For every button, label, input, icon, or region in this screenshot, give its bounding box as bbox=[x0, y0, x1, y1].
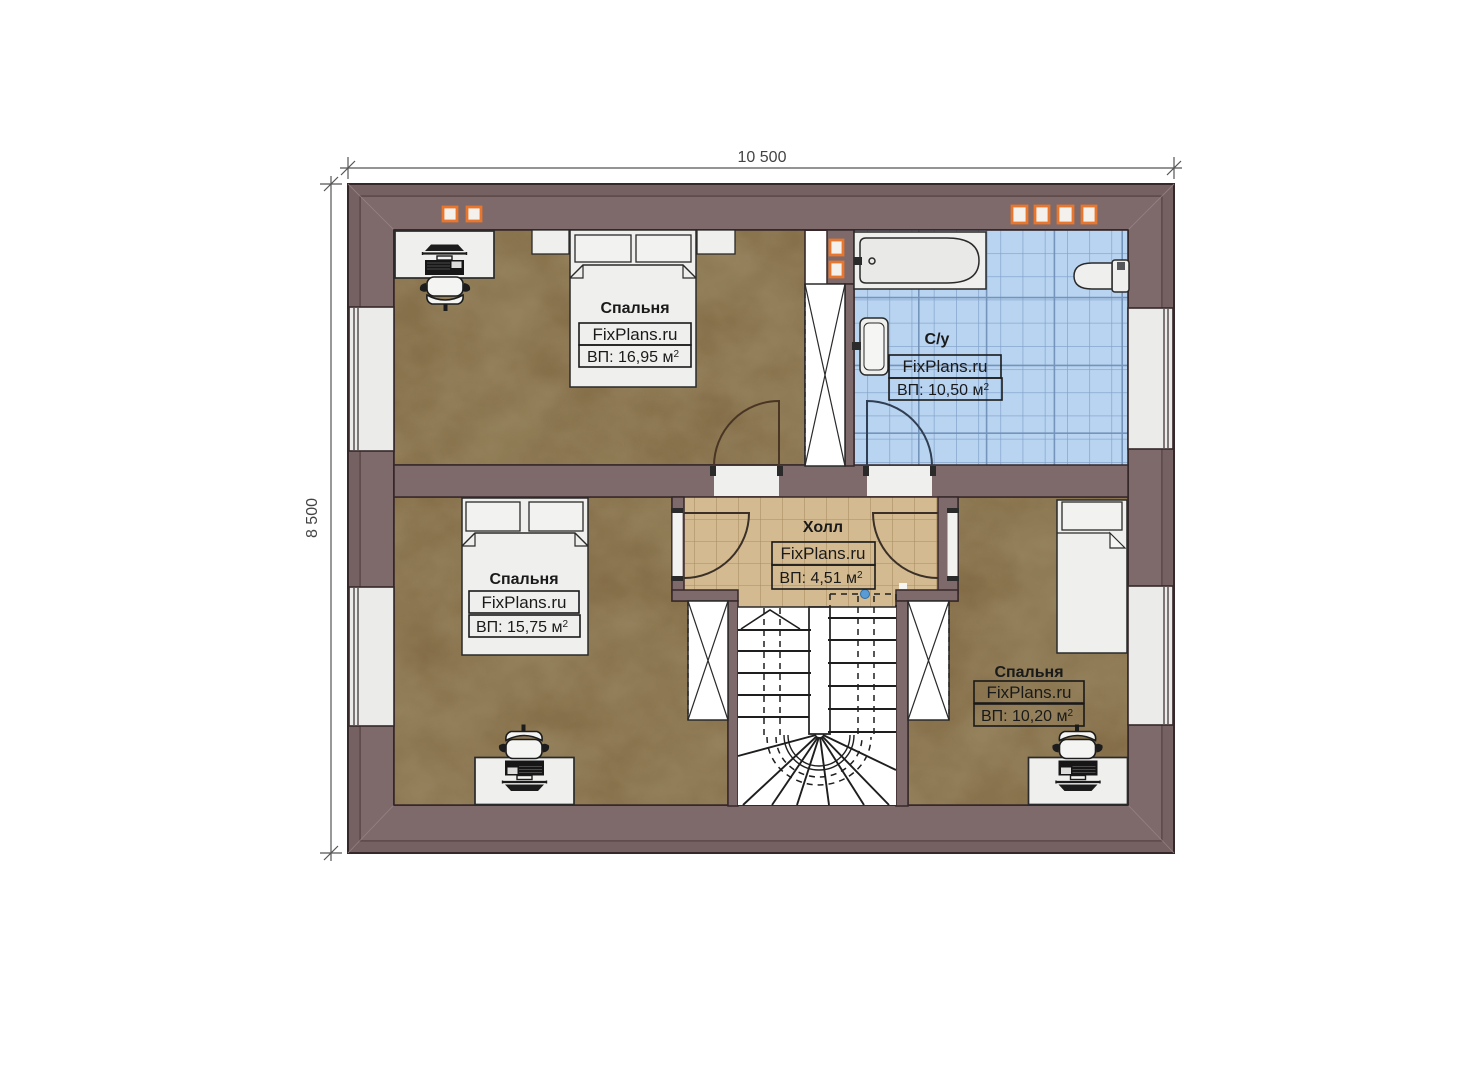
svg-text:FixPlans.ru: FixPlans.ru bbox=[986, 683, 1071, 702]
svg-text:8 500: 8 500 bbox=[304, 498, 321, 538]
svg-text:ВП: 4,51 м2: ВП: 4,51 м2 bbox=[779, 570, 863, 587]
svg-text:FixPlans.ru: FixPlans.ru bbox=[592, 325, 677, 344]
svg-text:ВП: 10,20 м2: ВП: 10,20 м2 bbox=[981, 708, 1074, 725]
svg-text:FixPlans.ru: FixPlans.ru bbox=[481, 593, 566, 612]
svg-text:FixPlans.ru: FixPlans.ru bbox=[780, 544, 865, 563]
svg-text:Спальня: Спальня bbox=[600, 300, 669, 317]
svg-text:10 500: 10 500 bbox=[738, 149, 787, 166]
svg-text:Спальня: Спальня bbox=[994, 664, 1063, 681]
svg-text:ВП: 10,50 м2: ВП: 10,50 м2 bbox=[897, 382, 990, 399]
svg-text:ВП: 15,75 м2: ВП: 15,75 м2 bbox=[476, 619, 569, 636]
svg-text:ВП: 16,95 м2: ВП: 16,95 м2 bbox=[587, 349, 680, 366]
svg-text:Холл: Холл bbox=[803, 519, 843, 536]
svg-text:FixPlans.ru: FixPlans.ru bbox=[902, 357, 987, 376]
svg-text:Спальня: Спальня bbox=[489, 571, 558, 588]
svg-text:С/у: С/у bbox=[925, 331, 950, 348]
